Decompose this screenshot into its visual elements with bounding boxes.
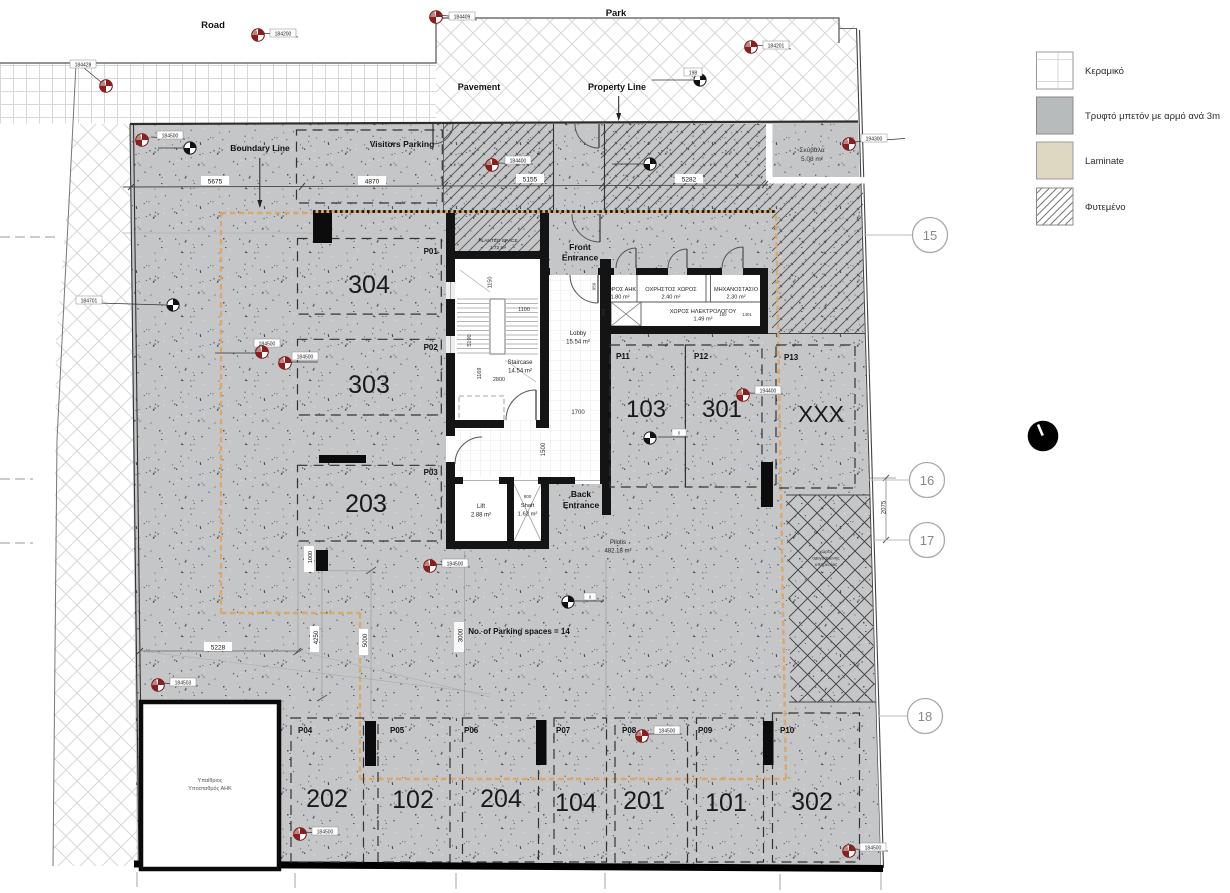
svg-text:P02: P02 bbox=[424, 343, 439, 352]
svg-text:P13: P13 bbox=[784, 353, 799, 362]
svg-text:102: 102 bbox=[392, 786, 434, 814]
svg-text:στεγασμένης: στεγασμένης bbox=[812, 555, 840, 562]
svg-text:184701: 184701 bbox=[81, 298, 98, 304]
svg-text:5.08 m²: 5.08 m² bbox=[801, 156, 824, 163]
svg-text:1.80 m²: 1.80 m² bbox=[611, 295, 630, 301]
svg-text:Κεραμικό: Κεραμικό bbox=[1085, 66, 1124, 77]
svg-text:201: 201 bbox=[623, 787, 665, 815]
svg-text:υπηρεσίας: υπηρεσίας bbox=[815, 562, 838, 568]
svg-text:PLANTED SPACE: PLANTED SPACE bbox=[478, 238, 517, 244]
svg-text:1100: 1100 bbox=[518, 307, 530, 313]
svg-text:Σκύβαλα: Σκύβαλα bbox=[799, 146, 824, 154]
svg-text:4250: 4250 bbox=[314, 630, 320, 644]
svg-text:184500: 184500 bbox=[865, 845, 882, 851]
svg-text:No. of Parking spaces = 14: No. of Parking spaces = 14 bbox=[468, 627, 570, 636]
svg-text:Φυτεμένο: Φυτεμένο bbox=[1085, 202, 1126, 213]
svg-text:1150: 1150 bbox=[488, 277, 494, 289]
svg-text:184428: 184428 bbox=[75, 62, 92, 68]
svg-text:Τρυφτό μπετόν με αρμό ανά 3m: Τρυφτό μπετόν με αρμό ανά 3m bbox=[1085, 111, 1220, 122]
svg-text:Visitors Parking: Visitors Parking bbox=[370, 139, 435, 149]
svg-text:16: 16 bbox=[920, 473, 934, 488]
svg-text:204: 204 bbox=[480, 785, 522, 813]
svg-text:203: 203 bbox=[345, 490, 387, 518]
svg-text:χώρος: χώρος bbox=[819, 548, 834, 555]
svg-text:P07: P07 bbox=[556, 726, 571, 735]
svg-text:14.54 m²: 14.54 m² bbox=[508, 369, 532, 375]
svg-text:184500: 184500 bbox=[162, 133, 179, 139]
svg-text:P03: P03 bbox=[424, 468, 439, 477]
svg-text:5155: 5155 bbox=[523, 177, 538, 184]
svg-text:304: 304 bbox=[348, 271, 390, 299]
svg-text:2.88 m²: 2.88 m² bbox=[471, 513, 491, 519]
svg-text:202: 202 bbox=[306, 785, 348, 813]
svg-text:5190: 5190 bbox=[467, 334, 473, 346]
svg-text:P06: P06 bbox=[464, 726, 479, 735]
svg-text:1500: 1500 bbox=[541, 442, 547, 456]
svg-text:2.40 m²: 2.40 m² bbox=[662, 295, 681, 301]
svg-text:184500: 184500 bbox=[297, 354, 314, 360]
svg-text:P12: P12 bbox=[694, 352, 709, 361]
svg-text:Υποσταθμός ΑΗΚ: Υποσταθμός ΑΗΚ bbox=[188, 785, 232, 792]
svg-text:900: 900 bbox=[524, 494, 532, 499]
svg-text:ΟΧΡΗΣΤΟΣ ΧΩΡΟΣ: ΟΧΡΗΣΤΟΣ ΧΩΡΟΣ bbox=[645, 287, 697, 293]
svg-text:5228: 5228 bbox=[211, 645, 226, 652]
svg-text:3000: 3000 bbox=[459, 628, 465, 642]
svg-text:Υπαίθριος: Υπαίθριος bbox=[198, 778, 223, 784]
svg-text:Park: Park bbox=[606, 8, 627, 19]
svg-text:104: 104 bbox=[555, 789, 597, 817]
svg-text:150: 150 bbox=[719, 312, 727, 317]
svg-text:302: 302 bbox=[791, 788, 833, 816]
svg-text:Lobby: Lobby bbox=[570, 331, 586, 337]
svg-text:150: 150 bbox=[601, 308, 606, 316]
svg-text:P01: P01 bbox=[424, 247, 439, 256]
svg-text:15.54 m²: 15.54 m² bbox=[566, 340, 590, 346]
svg-text:P08: P08 bbox=[622, 726, 637, 735]
svg-text:2800: 2800 bbox=[493, 377, 505, 383]
svg-text:17: 17 bbox=[920, 533, 934, 548]
svg-text:184500: 184500 bbox=[317, 829, 334, 835]
svg-text:Property Line: Property Line bbox=[588, 82, 646, 92]
svg-text:4870: 4870 bbox=[365, 179, 380, 186]
svg-text:Back: Back bbox=[571, 489, 592, 499]
svg-text:1169: 1169 bbox=[477, 368, 483, 380]
svg-text:Pavement: Pavement bbox=[458, 82, 501, 92]
svg-text:184503: 184503 bbox=[175, 680, 192, 686]
svg-text:Entrance: Entrance bbox=[563, 500, 600, 510]
svg-text:5282: 5282 bbox=[682, 177, 697, 184]
svg-text:ΜΗΧΑΝΟΣΤΑΣΙΟ: ΜΗΧΑΝΟΣΤΑΣΙΟ bbox=[714, 287, 759, 293]
svg-text:184500: 184500 bbox=[447, 561, 464, 567]
svg-text:P05: P05 bbox=[390, 726, 405, 735]
svg-text:5000: 5000 bbox=[363, 633, 369, 647]
svg-text:Pilotis: Pilotis bbox=[610, 540, 626, 546]
svg-text:301: 301 bbox=[702, 396, 742, 423]
svg-text:18: 18 bbox=[918, 709, 932, 724]
svg-text:P04: P04 bbox=[298, 726, 313, 735]
svg-text:P10: P10 bbox=[780, 726, 795, 735]
svg-text:184201: 184201 bbox=[768, 43, 785, 49]
svg-text:Road: Road bbox=[201, 20, 225, 31]
svg-text:Shaft: Shaft bbox=[521, 503, 535, 509]
svg-text:Front: Front bbox=[569, 242, 591, 252]
svg-text:Boundary Line: Boundary Line bbox=[230, 143, 290, 153]
svg-text:1000: 1000 bbox=[308, 551, 314, 563]
svg-text:Staircase: Staircase bbox=[507, 360, 533, 366]
svg-text:1700: 1700 bbox=[571, 410, 585, 416]
svg-text:2075: 2075 bbox=[882, 500, 888, 514]
svg-text:198: 198 bbox=[689, 70, 698, 76]
svg-text:950: 950 bbox=[592, 282, 597, 290]
svg-text:XXX: XXX bbox=[798, 401, 844, 427]
svg-text:194300: 194300 bbox=[866, 136, 883, 142]
svg-text:1.72 m²: 1.72 m² bbox=[490, 245, 507, 251]
svg-text:103: 103 bbox=[626, 396, 666, 423]
svg-text:184400: 184400 bbox=[510, 158, 527, 164]
svg-text:101: 101 bbox=[705, 789, 747, 817]
svg-text:P09: P09 bbox=[698, 726, 713, 735]
svg-text:303: 303 bbox=[348, 371, 390, 399]
svg-text:Lift: Lift bbox=[477, 504, 485, 510]
svg-text:2.30 m²: 2.30 m² bbox=[727, 295, 746, 301]
svg-text:1.49 m²: 1.49 m² bbox=[694, 317, 713, 323]
svg-text:184409: 184409 bbox=[454, 14, 471, 20]
svg-text:Laminate: Laminate bbox=[1085, 156, 1124, 167]
svg-text:Entrance: Entrance bbox=[562, 253, 599, 263]
svg-text:184200: 184200 bbox=[275, 31, 292, 37]
svg-text:194400: 194400 bbox=[760, 388, 777, 394]
svg-text:1.62 m²: 1.62 m² bbox=[518, 512, 538, 518]
svg-text:5675: 5675 bbox=[208, 179, 223, 186]
svg-text:1401: 1401 bbox=[742, 312, 752, 317]
svg-text:482.18 m²: 482.18 m² bbox=[604, 549, 631, 555]
svg-text:P11: P11 bbox=[616, 352, 630, 361]
svg-text:15: 15 bbox=[923, 228, 937, 243]
svg-text:184500: 184500 bbox=[659, 728, 676, 734]
